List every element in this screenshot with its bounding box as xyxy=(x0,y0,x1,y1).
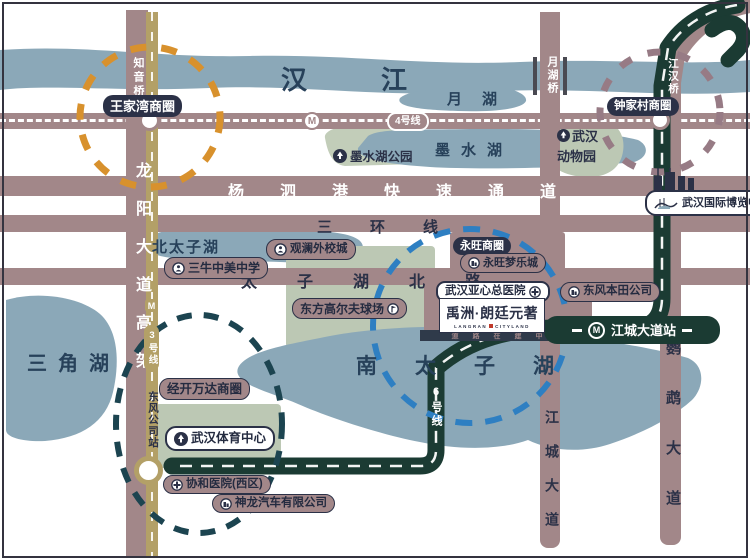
m-glyph: M xyxy=(148,301,156,311)
jianghan-bridge-label: 江汉桥 xyxy=(666,58,681,96)
jingkai-wanda-badge: 经开万达商圈 xyxy=(159,378,250,400)
line3-m-icon: M xyxy=(145,299,158,312)
moshui-park-label: 墨水湖公园 xyxy=(350,146,413,165)
yingwu-avenue-label: 鹦鹉大道 xyxy=(662,340,683,540)
location-map: 杨泗港快速通道 三环线 太子湖北路 知音桥 龙阳大道高架 月湖桥 江汉桥 江城大… xyxy=(0,0,750,560)
south-taizi-lake-label: 南太子湖 xyxy=(356,350,592,380)
north-taizi-lake-label: 北太子湖 xyxy=(152,236,220,257)
sports-center-badge: 武汉体育中心 xyxy=(165,426,275,451)
tree-icon xyxy=(174,432,188,446)
project-red-square xyxy=(489,324,493,328)
line6-m-icon: M xyxy=(588,322,605,339)
m-glyph: M xyxy=(308,116,316,127)
zoo-poi: 武汉 动物园 xyxy=(557,126,598,165)
guanlan-school-label: 观澜外校城 xyxy=(290,244,348,256)
line6-label: 6号线 xyxy=(428,386,444,429)
zhiyin-bridge-label: 知音桥 xyxy=(130,57,146,99)
dongfeng-honda-label: 东风本田公司 xyxy=(583,286,652,298)
guanlan-school-badge: 观澜外校城 xyxy=(266,239,356,260)
yaxin-hospital-label: 武汉亚心总医院 xyxy=(445,286,526,298)
line4-label: 4号线 xyxy=(395,117,421,127)
yuehu-bridge-bracket-right xyxy=(563,57,567,95)
tree-icon xyxy=(557,129,570,142)
sanniu-school-badge: 三牛中美中学 xyxy=(164,257,268,279)
line4-badge: 4号线 xyxy=(387,112,429,131)
jingkai-wanda-label: 经开万达商圈 xyxy=(167,383,242,396)
third-ring-label: 三环线 xyxy=(317,216,476,237)
shenlong-auto-label: 神龙汽车有限公司 xyxy=(235,498,327,510)
project-logo: 禹洲·朗廷元著 LANGRAN CITYLAND xyxy=(439,298,545,333)
school-icon xyxy=(274,243,287,256)
tree-icon xyxy=(333,149,347,163)
golf-flag-icon xyxy=(387,303,399,315)
dongfeng-honda-badge: 东风本田公司 xyxy=(560,282,660,302)
dash xyxy=(682,329,692,332)
expo-building-icon xyxy=(654,197,678,210)
jiangcheng-station-badge: M 江城大道站 xyxy=(544,316,720,344)
yongwang-mall-label: 永旺梦乐城 xyxy=(483,258,538,269)
yongwang-label: 永旺商圈 xyxy=(460,241,504,252)
dongfeng-station-label: 东风公司站 xyxy=(146,391,161,449)
xiehe-hospital-badge: 协和医院(西区) xyxy=(163,475,271,494)
hospital-cross-icon xyxy=(529,286,541,298)
line3-label: 3号线 xyxy=(145,330,159,366)
zoo-label-line2: 动物园 xyxy=(557,146,598,165)
hospital-cross-icon xyxy=(171,479,183,491)
line3-badge: 3号线 xyxy=(144,325,159,371)
golf-course-label: 东方高尔夫球场 xyxy=(300,303,384,315)
jiangcheng-avenue-label: 江城大道 xyxy=(542,410,562,546)
building-icon xyxy=(568,286,580,298)
zhongjiacun-label: 钟家村商圈 xyxy=(614,101,672,113)
project-subtitle-right: CITYLAND xyxy=(495,324,530,329)
expo-badge: 武汉国际博览中心 xyxy=(645,190,750,216)
zhongjiacun-badge: 钟家村商圈 xyxy=(607,97,679,116)
xiehe-hospital-label: 协和医院(西区) xyxy=(186,479,263,491)
golf-course-badge: 东方高尔夫球场 xyxy=(292,298,407,319)
jiangcheng-station-label: 江城大道站 xyxy=(611,324,676,337)
dongfeng-interchange-icon xyxy=(134,456,163,485)
yuehu-bridge-label: 月湖桥 xyxy=(544,56,560,95)
shenlong-auto-badge: 神龙汽车有限公司 xyxy=(212,494,335,513)
building-icon xyxy=(220,498,232,510)
expo-label: 武汉国际博览中心 xyxy=(682,198,750,209)
yongwang-mall-badge: 永旺梦乐城 xyxy=(460,253,546,273)
yangsigang-label: 杨泗港快速通道 xyxy=(228,178,592,202)
yuehu-bridge-bracket-left xyxy=(533,57,537,95)
moshui-lake-label: 墨水湖 xyxy=(435,139,513,160)
zoo-label-line1: 武汉 xyxy=(572,126,598,145)
wangjiawan-badge: 王家湾商圈 xyxy=(103,95,182,117)
dash xyxy=(572,329,582,332)
line4-m-icon: M xyxy=(303,112,321,130)
sports-center-label: 武汉体育中心 xyxy=(191,432,266,445)
project-name: 禹洲·朗廷元著 xyxy=(446,303,538,323)
sanniu-school-label: 三牛中美中学 xyxy=(188,262,260,274)
triangle-lake-label: 三角湖 xyxy=(27,347,120,376)
wangjiawan-label: 王家湾商圈 xyxy=(110,100,175,113)
project-subtitle-left: LANGRAN xyxy=(454,324,487,329)
building-icon xyxy=(468,257,480,269)
school-icon xyxy=(172,262,185,275)
moshui-park-poi: 墨水湖公园 xyxy=(333,146,413,165)
yue-lake-label: 月湖 xyxy=(447,88,517,109)
line6-hook xyxy=(712,22,744,60)
